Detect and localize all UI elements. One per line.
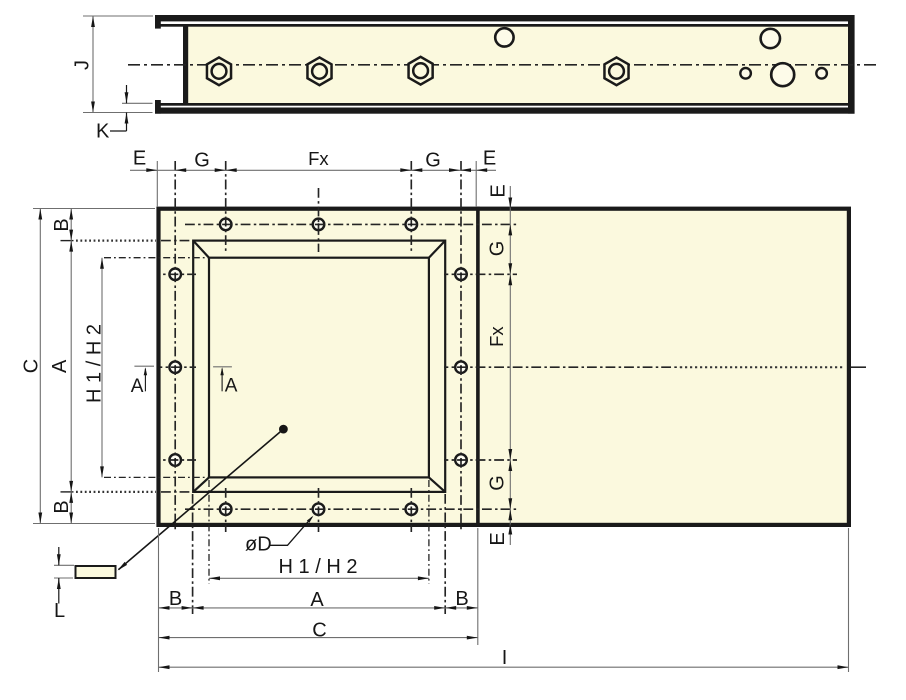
svg-text:I: I [502, 647, 508, 669]
svg-text:H 1 / H 2: H 1 / H 2 [279, 556, 358, 578]
svg-text:A: A [131, 376, 144, 397]
svg-text:A: A [310, 589, 324, 611]
svg-text:G: G [194, 150, 210, 172]
svg-text:B: B [455, 588, 468, 610]
svg-text:Fx: Fx [308, 148, 329, 169]
svg-text:C: C [21, 359, 43, 373]
svg-text:J: J [72, 60, 94, 70]
svg-text:H 1 / H 2: H 1 / H 2 [84, 324, 106, 403]
svg-text:E: E [483, 147, 496, 169]
svg-text:B: B [169, 588, 182, 610]
svg-text:G: G [487, 475, 509, 491]
svg-text:L: L [54, 600, 65, 622]
svg-text:E: E [487, 532, 509, 545]
svg-text:K: K [96, 121, 110, 143]
svg-text:B: B [51, 500, 73, 513]
svg-text:G: G [425, 150, 441, 172]
svg-text:øD: øD [245, 533, 272, 555]
svg-text:G: G [487, 241, 509, 257]
svg-text:Fx: Fx [486, 326, 507, 347]
svg-text:C: C [312, 620, 326, 642]
svg-text:A: A [49, 359, 71, 373]
svg-text:E: E [488, 184, 510, 197]
svg-text:E: E [133, 147, 146, 169]
svg-text:A: A [225, 376, 238, 397]
svg-text:B: B [51, 218, 73, 231]
